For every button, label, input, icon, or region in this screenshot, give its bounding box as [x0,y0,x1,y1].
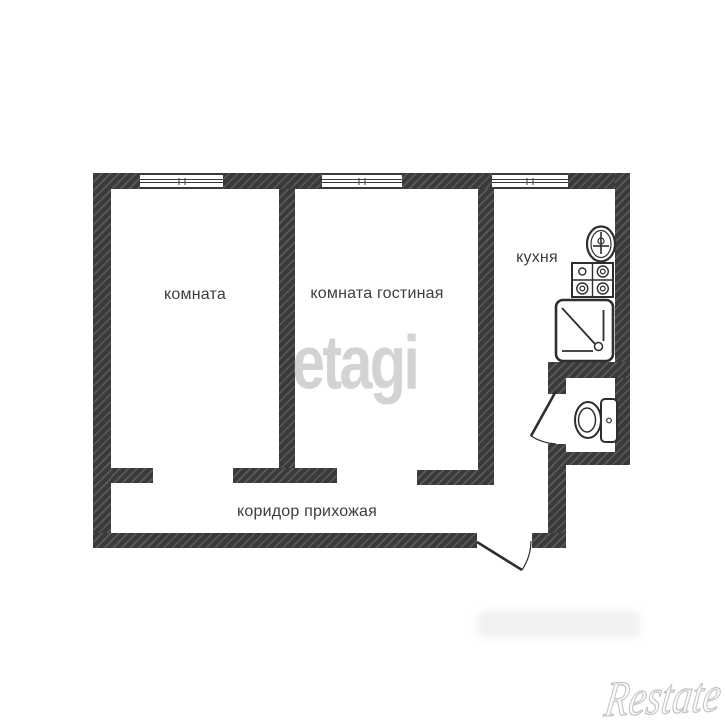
shower-tray [556,300,613,361]
kitchen-sink [587,227,615,262]
room2-label: комната гостиная [310,285,443,303]
floor-plan-page: { "floor_plan": { "type": "apartment-flo… [0,0,725,725]
bathroom-door-swing [531,391,556,444]
toilet [575,399,617,442]
room1-label: комната [164,286,226,304]
stove-icon [572,263,613,297]
fixtures-layer [0,0,725,725]
entrance-door-swing [477,541,531,570]
kitchen-label: кухня [516,249,558,267]
corridor-label: коридор прихожая [237,503,377,521]
